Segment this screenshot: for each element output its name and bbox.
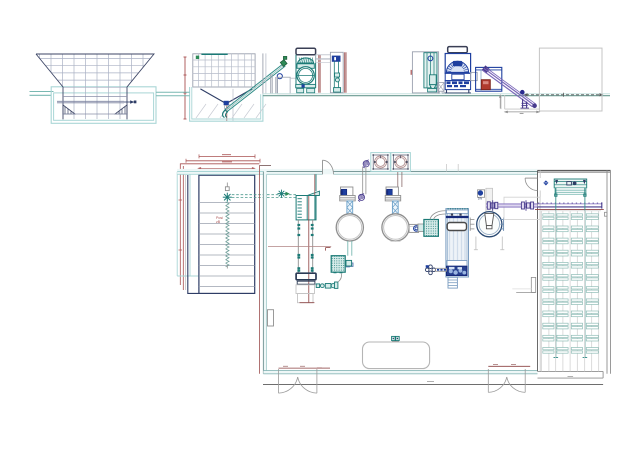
svg-text:DN: DN xyxy=(478,197,482,201)
svg-text:zB: zB xyxy=(216,220,221,224)
